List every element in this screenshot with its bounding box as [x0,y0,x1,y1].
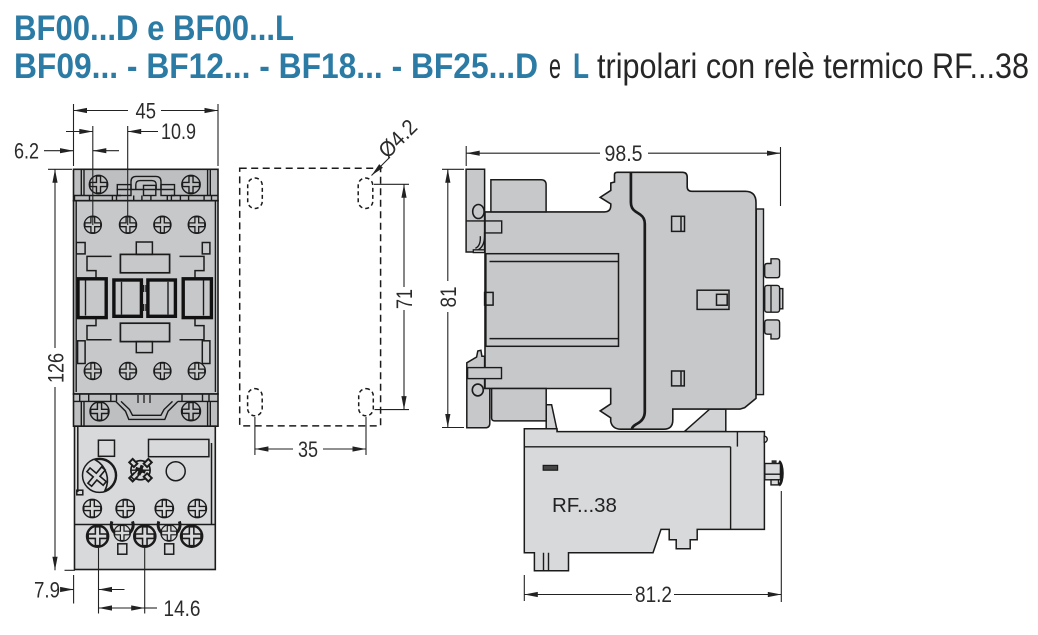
svg-text:BF00...D e BF00...L: BF00...D e BF00...L [14,8,294,48]
svg-text:81.2: 81.2 [635,582,672,607]
svg-text:L: L [573,46,589,86]
svg-text:126: 126 [44,353,69,383]
svg-text:Ø4.2: Ø4.2 [373,114,422,163]
svg-text:e: e [549,46,561,86]
svg-text:10.9: 10.9 [161,119,196,144]
svg-text:RF...38: RF...38 [552,494,617,517]
svg-text:BF09... - BF12... - BF18... -: BF09... - BF12... - BF18... - BF25...D [14,46,538,86]
svg-text:81: 81 [436,287,461,308]
svg-text:7.9: 7.9 [34,578,60,603]
svg-text:35: 35 [298,437,318,462]
svg-text:71: 71 [392,289,417,309]
svg-text:14.6: 14.6 [164,596,201,621]
svg-text:45: 45 [136,99,157,124]
svg-text:6.2: 6.2 [14,139,39,164]
svg-text:98.5: 98.5 [605,141,643,166]
svg-text:tripolari con relè termico RF.: tripolari con relè termico RF...38 [597,46,1029,86]
